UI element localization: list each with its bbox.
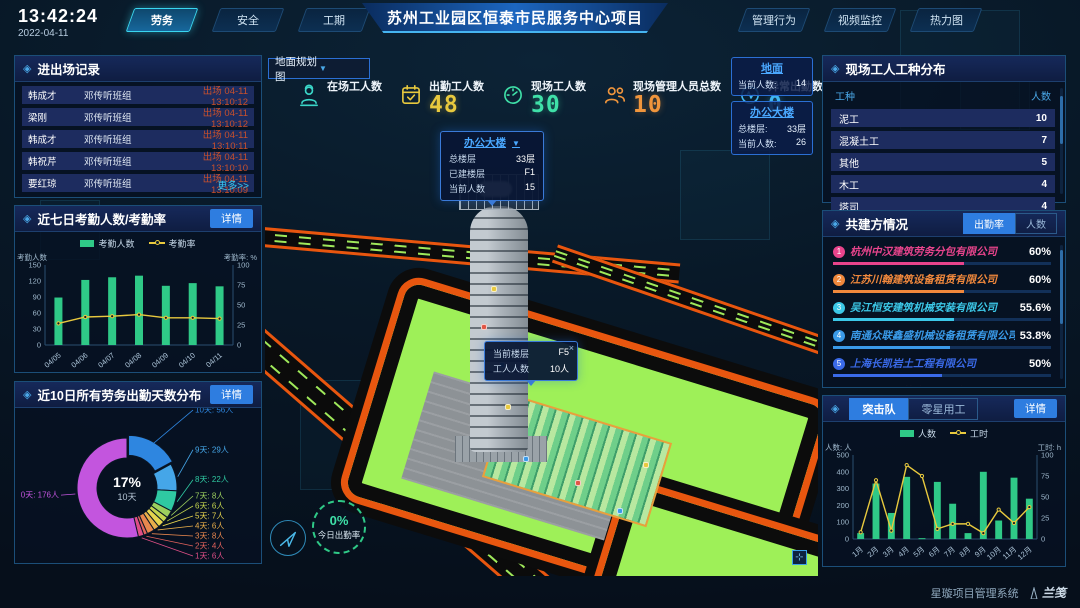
mini-panel-row: 总楼层:33层: [738, 122, 806, 135]
tab-label: 劳务: [151, 12, 173, 28]
distribution-donut-chart: 10天: 56人9天: 29人8天: 22人7天: 8人6天: 6人5天: 7人…: [15, 408, 261, 562]
map-tower-building[interactable]: [470, 206, 528, 452]
svg-text:150: 150: [28, 261, 41, 270]
svg-text:12月: 12月: [1016, 545, 1034, 562]
dashboard-screen: 13:42:24 2022-04-11 劳务安全工期 苏州工业园区恒泰市民服务中…: [0, 0, 1080, 608]
svg-text:17%: 17%: [113, 474, 142, 490]
svg-text:1天: 6人: 1天: 6人: [195, 552, 224, 561]
tooltip-arrow: [526, 380, 536, 386]
svg-text:8月: 8月: [958, 545, 973, 559]
worker-icon: [296, 82, 322, 108]
stat-现场管理人员总数: 现场管理人员总数10: [602, 78, 721, 117]
worker-type: 泥工: [839, 111, 859, 126]
table-row[interactable]: 韩成才邓传听班组出场 04-11 13:10:11: [22, 130, 254, 148]
tab-劳务[interactable]: 劳务: [126, 8, 199, 32]
panel-worker-types-title: 现场工人工种分布: [845, 59, 945, 78]
attendance-chart: 考勤人数考勤率: %0306090120150025507510004/0504…: [15, 251, 259, 369]
diamond-icon: ◈: [23, 388, 31, 401]
worker-type: 木工: [839, 177, 859, 192]
svg-text:04/06: 04/06: [69, 351, 89, 369]
legend-bar-item: 考勤人数: [80, 237, 134, 250]
svg-text:3天: 8人: 3天: 8人: [195, 532, 224, 541]
panel-entry-exit-header: ◈ 进出场记录: [15, 56, 261, 82]
attendance-rate: 55.6%: [1020, 302, 1051, 314]
calendar-check-icon: [398, 82, 424, 108]
gauge-value: 0%: [330, 513, 349, 528]
panel-team-chart: ◈ 突击队零星用工 详情 人数 工时 人数: 人工时: h01002003004…: [822, 395, 1066, 567]
attendance-legend: 考勤人数 考勤率: [15, 235, 261, 251]
clock-time: 13:42:24: [18, 6, 98, 27]
team-legend: 人数 工时: [823, 425, 1065, 441]
rate-bar: [833, 318, 954, 321]
scrollbar[interactable]: [1060, 88, 1063, 194]
rate-bar: [833, 290, 964, 293]
page-title-banner: 苏州工业园区恒泰市民服务中心项目: [362, 3, 668, 33]
partner-tab-出勤率[interactable]: 出勤率: [963, 213, 1015, 234]
svg-text:100: 100: [1041, 451, 1054, 460]
partner-item: 3吴江恒安建筑机械安装有限公司55.6%: [833, 300, 1051, 321]
worker-name: 韩祝芹: [28, 154, 84, 168]
svg-text:0: 0: [845, 535, 849, 544]
stat-value: 48: [429, 94, 484, 117]
svg-text:7月: 7月: [942, 545, 957, 559]
svg-text:10天: 56人: 10天: 56人: [195, 408, 233, 415]
mini-panel-地面: 地面当前人数:14: [731, 57, 813, 96]
svg-text:5月: 5月: [912, 545, 927, 559]
bar-swatch-icon: [80, 240, 94, 247]
panel-partners-header: ◈ 共建方情况 出勤率人数: [823, 211, 1065, 237]
table-row[interactable]: 韩祝芹邓传听班组出场 04-11 13:10:10: [22, 152, 254, 170]
gauge-label: 今日出勤率: [318, 529, 361, 541]
rate-bar-track: [833, 290, 1051, 293]
more-link[interactable]: 更多>>: [217, 177, 249, 192]
tooltip-row: 当前人数15: [449, 182, 535, 195]
team-tabs: 突击队零星用工: [849, 398, 978, 420]
svg-text:04/05: 04/05: [43, 351, 63, 369]
svg-text:100: 100: [237, 261, 250, 270]
svg-text:500: 500: [836, 451, 849, 460]
compass-button[interactable]: [270, 520, 306, 556]
tab-label: 安全: [237, 12, 259, 28]
svg-text:0: 0: [37, 341, 41, 350]
svg-text:60: 60: [33, 309, 41, 318]
svg-text:75: 75: [237, 281, 245, 290]
footer: 星璇项目管理系统 兰笺: [931, 584, 1066, 601]
panel-entry-exit: ◈ 进出场记录 韩成才邓传听班组出场 04-11 13:10:12梁刚邓传听班组…: [14, 55, 262, 198]
tooltip-value: F1: [524, 167, 535, 180]
attendance-gauge: 0% 今日出勤率: [312, 500, 366, 554]
worker-type: 混凝土工: [839, 133, 879, 148]
svg-text:10天: 10天: [117, 492, 136, 502]
worker-count: 10: [1036, 113, 1047, 124]
panel-team-chart-header: ◈ 突击队零星用工 详情: [823, 396, 1065, 422]
stat-value: 30: [531, 94, 586, 117]
diamond-icon: ◈: [831, 402, 839, 415]
panel-attendance-header: ◈ 近七日考勤人数/考勤率 详情: [15, 206, 261, 232]
tab-安全[interactable]: 安全: [212, 8, 285, 32]
table-row[interactable]: 梁刚邓传听班组出场 04-11 13:10:12: [22, 108, 254, 126]
svg-text:0天: 176人: 0天: 176人: [21, 491, 59, 500]
svg-text:10月: 10月: [985, 545, 1003, 562]
tab-label: 工期: [323, 12, 345, 28]
tooltip-label: 当前人数: [449, 182, 485, 195]
svg-text:75: 75: [1041, 472, 1049, 481]
navigation-arrow-icon: [277, 527, 299, 549]
svg-text:2月: 2月: [866, 545, 881, 559]
svg-text:7天: 8人: 7天: 8人: [195, 492, 224, 501]
company-name[interactable]: 江苏川翰建筑设备租赁有限公司: [850, 272, 1024, 287]
gauge-icon: [500, 82, 526, 108]
svg-text:4天: 6人: 4天: 6人: [195, 522, 224, 531]
diamond-icon: ◈: [831, 62, 839, 75]
panel-attendance: ◈ 近七日考勤人数/考勤率 详情 考勤人数 考勤率 考勤人数考勤率: %0306…: [14, 205, 262, 373]
bar-swatch-icon: [900, 430, 914, 437]
svg-text:200: 200: [836, 501, 849, 510]
rate-bar-track: [833, 262, 1051, 265]
partner-tab-人数[interactable]: 人数: [1015, 213, 1057, 234]
tooltip-value: 15: [525, 182, 535, 195]
fullscreen-icon[interactable]: ⊹: [792, 550, 807, 565]
worker-types-rows: 泥工10混凝土工7其他5木工4塔司4: [823, 109, 1065, 215]
map-view-select[interactable]: 地面规划图▼: [268, 58, 370, 79]
team-name: 邓传听班组: [84, 176, 170, 190]
svg-text:6天: 6人: 6天: 6人: [195, 502, 224, 511]
company-name[interactable]: 南通众联鑫盛机械设备租赁有限公司: [850, 328, 1015, 343]
worker-count: 7: [1041, 135, 1047, 146]
svg-text:0: 0: [237, 341, 241, 350]
worker-type: 其他: [839, 155, 859, 170]
svg-text:04/09: 04/09: [150, 351, 170, 369]
chevron-down-icon: ▼: [319, 64, 363, 73]
worker-name: 韩成才: [28, 88, 84, 102]
tab-管理行为[interactable]: 管理行为: [738, 8, 811, 32]
svg-text:400: 400: [836, 467, 849, 476]
svg-text:50: 50: [1041, 493, 1049, 502]
svg-text:2天: 4人: 2天: 4人: [195, 542, 224, 551]
chevron-down-icon[interactable]: ▼: [512, 139, 520, 148]
team-name: 邓传听班组: [84, 110, 170, 124]
partner-tabs: 出勤率人数: [963, 213, 1057, 234]
mini-panel-title[interactable]: 地面: [738, 60, 806, 76]
distribution-detail-button[interactable]: 详情: [210, 385, 253, 404]
worker-types-table-header: 工种人数: [823, 82, 1065, 105]
worker-name: 韩成才: [28, 132, 84, 146]
stat-label: 在场工人数: [327, 78, 382, 94]
nav-tabs-right: 管理行为视频监控热力图: [742, 8, 978, 32]
tooltip-label: 当前楼层: [493, 347, 529, 360]
mini-panel-row: 当前人数:14: [738, 78, 806, 91]
panel-entry-exit-title: 进出场记录: [37, 59, 100, 78]
partner-list: 1杭州中汉建筑劳务分包有限公司60%2江苏川翰建筑设备租赁有限公司60%3吴江恒…: [823, 237, 1065, 386]
svg-text:300: 300: [836, 484, 849, 493]
svg-text:04/07: 04/07: [96, 351, 116, 369]
legend-line-item: 考勤率: [149, 237, 196, 250]
diamond-icon: ◈: [831, 217, 839, 230]
diamond-icon: ◈: [23, 212, 31, 225]
worker-marker: [643, 462, 649, 468]
svg-text:6月: 6月: [927, 545, 942, 559]
svg-text:0: 0: [1041, 535, 1045, 544]
attendance-detail-button[interactable]: 详情: [210, 209, 253, 228]
partner-item: 2江苏川翰建筑设备租赁有限公司60%: [833, 272, 1051, 293]
rate-bar-track: [833, 346, 1051, 349]
rank-badge: 3: [833, 302, 845, 314]
stat-现场工人数: 现场工人数30: [500, 78, 586, 117]
attendance-rate: 50%: [1029, 358, 1051, 370]
tooltip-label: 总楼层: [449, 152, 476, 165]
page-title: 苏州工业园区恒泰市民服务中心项目: [387, 7, 643, 28]
brand-logo: 兰笺: [1029, 584, 1066, 601]
svg-text:04/10: 04/10: [177, 351, 197, 369]
table-row[interactable]: 混凝土工7: [831, 131, 1055, 149]
tooltip-value: 10人: [550, 362, 569, 375]
svg-text:8天: 22人: 8天: 22人: [195, 475, 229, 484]
tab-热力图[interactable]: 热力图: [910, 8, 983, 32]
line-swatch-icon: [950, 432, 966, 434]
tooltip-row: 总楼层33层: [449, 152, 535, 165]
worker-marker: [491, 286, 497, 292]
partner-item: 1杭州中汉建筑劳务分包有限公司60%: [833, 244, 1051, 265]
table-row[interactable]: 木工4: [831, 175, 1055, 193]
panel-distribution-title: 近10日所有劳务出勤天数分布: [37, 385, 201, 404]
worker-count: 4: [1041, 179, 1047, 190]
svg-text:90: 90: [33, 293, 41, 302]
nav-tabs-left: 劳务安全工期: [130, 8, 366, 32]
diamond-icon: ◈: [23, 62, 31, 75]
svg-text:04/08: 04/08: [123, 351, 143, 369]
worker-marker: [617, 508, 623, 514]
company-name[interactable]: 江苏法诺建筑安装工程有限公司: [850, 384, 1015, 386]
line-swatch-icon: [149, 242, 165, 244]
mini-panel-办公大楼: 办公大楼总楼层:33层当前人数:26: [731, 101, 813, 155]
worker-marker: [505, 404, 511, 410]
panel-attendance-title: 近七日考勤人数/考勤率: [37, 209, 165, 228]
panel-partners-title: 共建方情况: [845, 214, 908, 233]
attendance-rate: 60%: [1029, 246, 1051, 258]
svg-text:9天: 29人: 9天: 29人: [195, 445, 229, 454]
svg-text:9月: 9月: [973, 545, 988, 559]
team-name: 邓传听班组: [84, 132, 170, 146]
svg-text:25: 25: [237, 321, 245, 330]
legend-bar-item: 人数: [900, 427, 936, 440]
panel-worker-types-header: ◈ 现场工人工种分布: [823, 56, 1065, 82]
stat-在场工人数: 在场工人数: [296, 78, 382, 117]
tooltip-row: 已建楼层F1: [449, 167, 535, 180]
team-tab-零星用工[interactable]: 零星用工: [908, 398, 978, 420]
rank-badge: 4: [833, 330, 845, 342]
panel-worker-types: ◈ 现场工人工种分布 工种人数 泥工10混凝土工7其他5木工4塔司4: [822, 55, 1066, 203]
svg-text:5天: 7人: 5天: 7人: [195, 512, 224, 521]
rank-badge: 6: [833, 386, 845, 387]
tooltip-label: 已建楼层: [449, 167, 485, 180]
clock: 13:42:24 2022-04-11: [18, 6, 98, 39]
close-icon[interactable]: ×: [569, 343, 574, 353]
team-chart: 人数: 人工时: h010020030040050002550751001月2月…: [823, 441, 1063, 563]
worker-marker: [523, 456, 529, 462]
mini-panel-row: 当前人数:26: [738, 137, 806, 150]
svg-text:25: 25: [1041, 514, 1049, 523]
company-name[interactable]: 杭州中汉建筑劳务分包有限公司: [850, 244, 1024, 259]
clock-date: 2022-04-11: [18, 28, 98, 39]
tooltip-value: F5: [558, 347, 569, 360]
rank-badge: 2: [833, 274, 845, 286]
company-name[interactable]: 吴江恒安建筑机械安装有限公司: [850, 300, 1015, 315]
system-name: 星璇项目管理系统: [931, 585, 1019, 601]
rank-badge: 5: [833, 358, 845, 370]
tab-label: 管理行为: [752, 12, 796, 28]
building-tooltip-title[interactable]: 办公大楼: [464, 137, 506, 149]
rate-bar-track: [833, 318, 1051, 321]
worker-count: 5: [1041, 157, 1047, 168]
rate-bar: [833, 262, 964, 265]
svg-text:50: 50: [237, 301, 245, 310]
company-name[interactable]: 上海长凯岩土工程有限公司: [850, 356, 1024, 371]
rate-bar: [833, 346, 950, 349]
svg-text:120: 120: [28, 277, 41, 286]
logo-icon: [1029, 587, 1039, 599]
floor-tooltip: × 当前楼层F5工人人数10人: [484, 341, 578, 381]
rate-bar: [833, 374, 942, 377]
mini-panel-title[interactable]: 办公大楼: [738, 104, 806, 120]
partner-item: 4南通众联鑫盛机械设备租赁有限公司53.8%: [833, 328, 1051, 349]
panel-distribution: ◈ 近10日所有劳务出勤天数分布 详情 10天: 56人9天: 29人8天: 2…: [14, 381, 262, 564]
partner-item: 6江苏法诺建筑安装工程有限公司35.4%: [833, 384, 1051, 386]
worker-name: 梁刚: [28, 110, 84, 124]
table-row[interactable]: 泥工10: [831, 109, 1055, 127]
building-tooltip: 办公大楼▼ 总楼层33层已建楼层F1当前人数15: [440, 131, 544, 201]
scrollbar[interactable]: [1060, 245, 1063, 379]
team-tab-突击队[interactable]: 突击队: [849, 398, 908, 420]
legend-line-item: 工时: [950, 427, 988, 440]
tooltip-label: 工人人数: [493, 362, 529, 375]
svg-text:30: 30: [33, 325, 41, 334]
svg-text:11月: 11月: [1001, 545, 1019, 562]
rank-badge: 1: [833, 246, 845, 258]
partner-item: 5上海长凯岩土工程有限公司50%: [833, 356, 1051, 377]
panel-distribution-header: ◈ 近10日所有劳务出勤天数分布 详情: [15, 382, 261, 408]
tab-工期[interactable]: 工期: [298, 8, 371, 32]
worker-name: 要红琼: [28, 176, 84, 190]
table-row[interactable]: 韩成才邓传听班组出场 04-11 13:10:12: [22, 86, 254, 104]
tooltip-row: 工人人数10人: [493, 362, 569, 375]
attendance-rate: 53.8%: [1020, 330, 1051, 342]
team-detail-button[interactable]: 详情: [1014, 399, 1057, 418]
tab-label: 视频监控: [838, 12, 882, 28]
svg-text:3月: 3月: [881, 545, 896, 559]
tooltip-value: 33层: [516, 152, 535, 165]
worker-marker: [481, 324, 487, 330]
stat-value: 10: [633, 94, 721, 117]
svg-text:1月: 1月: [850, 545, 865, 559]
team-name: 邓传听班组: [84, 154, 170, 168]
people-icon: [602, 82, 628, 108]
tooltip-row: 当前楼层F5: [493, 347, 569, 360]
rate-bar-track: [833, 374, 1051, 377]
tab-视频监控[interactable]: 视频监控: [824, 8, 897, 32]
svg-text:100: 100: [836, 518, 849, 527]
attendance-rate: 35.4%: [1020, 386, 1051, 387]
svg-text:4月: 4月: [896, 545, 911, 559]
table-row[interactable]: 其他5: [831, 153, 1055, 171]
panel-partners: ◈ 共建方情况 出勤率人数 1杭州中汉建筑劳务分包有限公司60%2江苏川翰建筑设…: [822, 210, 1066, 388]
svg-text:04/11: 04/11: [204, 351, 224, 369]
stat-出勤工人数: 出勤工人数48: [398, 78, 484, 117]
tab-label: 热力图: [930, 12, 963, 28]
tooltip-arrow: [487, 200, 497, 206]
attendance-rate: 60%: [1029, 274, 1051, 286]
team-name: 邓传听班组: [84, 88, 170, 102]
worker-marker: [575, 480, 581, 486]
